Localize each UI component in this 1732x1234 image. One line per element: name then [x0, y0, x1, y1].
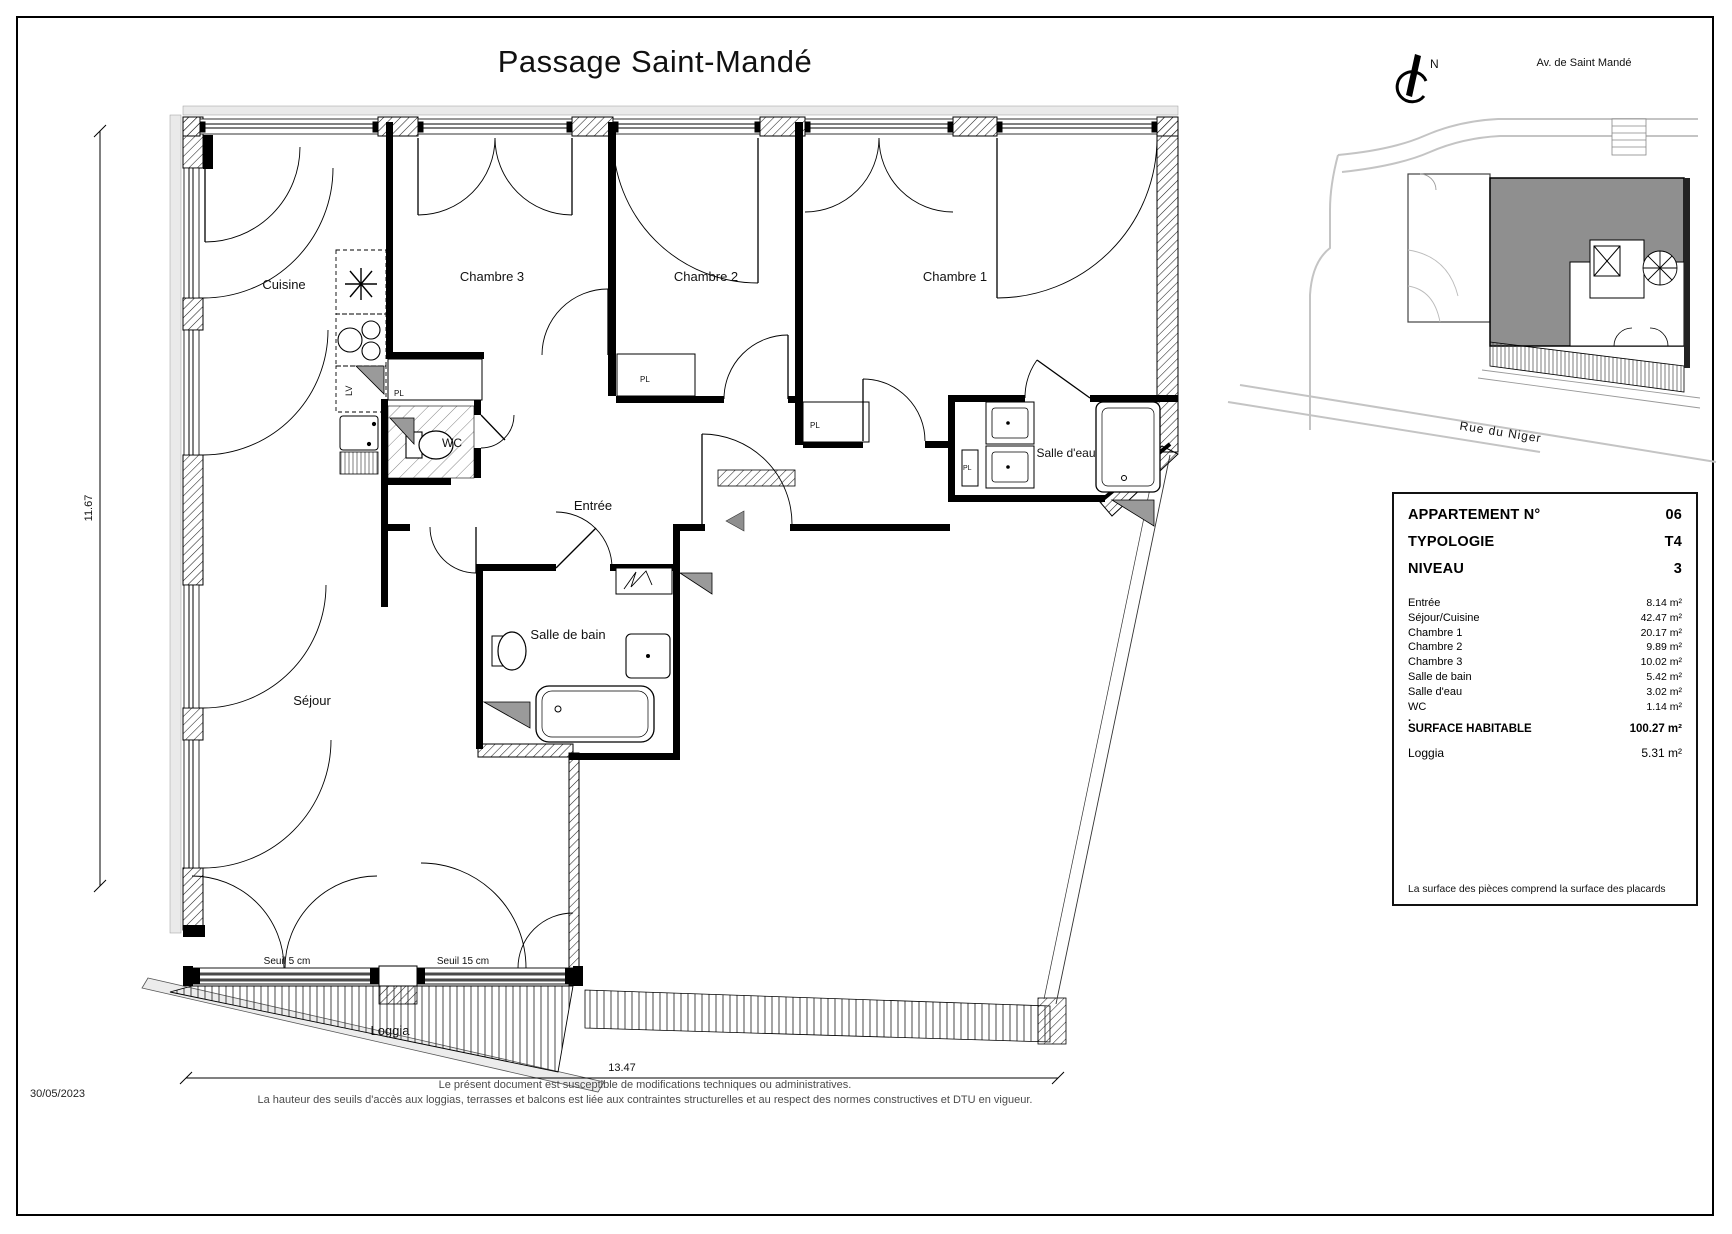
dimension-vertical	[94, 125, 106, 892]
panel-label: TYPOLOGIE	[1408, 534, 1494, 550]
terrace-pier	[1038, 998, 1066, 1044]
room-label-sejour: Séjour	[293, 693, 331, 708]
panel-row-typology: TYPOLOGIE T4	[1408, 534, 1682, 550]
area-row-sejour-cuisine: Séjour/Cuisine42.47 m²	[1408, 611, 1682, 626]
kitchen-fixtures	[336, 250, 386, 474]
facade-strip-top	[183, 106, 1178, 115]
room-label-chambre1: Chambre 1	[923, 269, 987, 284]
compass-north-label: N	[1430, 57, 1439, 71]
area-row-chambre3: Chambre 310.02 m²	[1408, 655, 1682, 670]
placard-label-3: PL	[810, 421, 820, 430]
area-row-chambre2: Chambre 29.89 m²	[1408, 640, 1682, 655]
panel-label: NIVEAU	[1408, 561, 1464, 577]
street-label-top: Av. de Saint Mandé	[1537, 57, 1632, 69]
neighbor-terrace-band	[585, 990, 1050, 1042]
sink-icon	[345, 268, 377, 300]
loggia-area-row: Loggia5.31 m²	[1408, 746, 1682, 760]
map-balcony-band	[1490, 342, 1684, 392]
hob-icon	[338, 321, 380, 360]
page: { "title": "Passage Saint-Mandé", "date"…	[0, 0, 1732, 1234]
panel-note: La surface des pièces comprend la surfac…	[1408, 884, 1666, 895]
area-row-entree: Entrée8.14 m²	[1408, 596, 1682, 611]
surface-total-row: SURFACE HABITABLE100.27 m²	[1408, 722, 1682, 737]
room-label-entree: Entrée	[574, 498, 612, 513]
toilet-icon	[498, 632, 526, 670]
info-panel: APPARTEMENT N° 06 TYPOLOGIE T4 NIVEAU 3 …	[1392, 492, 1698, 906]
panel-separator: .	[1408, 714, 1682, 722]
south-sliders	[183, 966, 583, 986]
date-label: 30/05/2023	[30, 1088, 85, 1100]
water-heater-icon	[616, 568, 672, 594]
crosswalk-icon	[1612, 119, 1646, 155]
room-label-chambre2: Chambre 2	[674, 269, 738, 284]
footer-notes: Le présent document est susceptible de m…	[0, 1078, 1290, 1108]
area-row-salle-de-bain: Salle de bain5.42 m²	[1408, 670, 1682, 685]
panel-row-apartment: APPARTEMENT N° 06	[1408, 507, 1682, 523]
placard-label-1: PL	[394, 389, 404, 398]
footer-note-1: Le présent document est susceptible de m…	[0, 1078, 1290, 1093]
site-map: Av. de Saint Mandé Rue du Niger	[1228, 57, 1716, 462]
east-facade-line-2	[1044, 450, 1158, 999]
dimension-width-label: 13.47	[608, 1062, 636, 1074]
room-label-loggia: Loggia	[370, 1023, 410, 1038]
room-label-chambre3: Chambre 3	[460, 269, 524, 284]
panel-value: 3	[1674, 561, 1682, 577]
area-row-wc: WC1.14 m²	[1408, 700, 1682, 715]
exterior-piers	[183, 117, 1178, 1004]
windows-top	[200, 119, 1157, 134]
panel-value: 06	[1665, 507, 1682, 523]
room-label-salle-deau: Salle d'eau	[1036, 446, 1095, 460]
panel-value: T4	[1665, 534, 1682, 550]
panel-row-level: NIVEAU 3	[1408, 561, 1682, 577]
entry-arrow-icon	[726, 511, 744, 531]
facade-strip-left	[170, 115, 181, 933]
map-neighbor-building	[1408, 174, 1490, 322]
seuil-label-left: Seuil 5 cm	[264, 956, 311, 967]
north-arrow-icon: N	[1397, 54, 1439, 102]
placard-label-4: PL	[963, 465, 972, 472]
footer-note-2: La hauteur des seuils d'accès aux loggia…	[0, 1093, 1290, 1108]
dishwasher-label: LV	[344, 386, 354, 396]
east-facade-line	[1056, 455, 1170, 1004]
panel-label: APPARTEMENT N°	[1408, 507, 1540, 523]
area-row-chambre1: Chambre 120.17 m²	[1408, 626, 1682, 641]
room-label-wc: WC	[442, 436, 462, 450]
area-row-salle-deau: Salle d'eau3.02 m²	[1408, 685, 1682, 700]
room-label-salle-de-bain: Salle de bain	[530, 627, 605, 642]
room-label-cuisine: Cuisine	[262, 277, 305, 292]
spiral-stair-icon	[1643, 251, 1677, 285]
placard-label-2: PL	[640, 375, 650, 384]
seuil-label-right: Seuil 15 cm	[437, 956, 489, 967]
elevator-icon	[1594, 246, 1620, 276]
dimension-height-label: 11.67	[83, 495, 95, 522]
